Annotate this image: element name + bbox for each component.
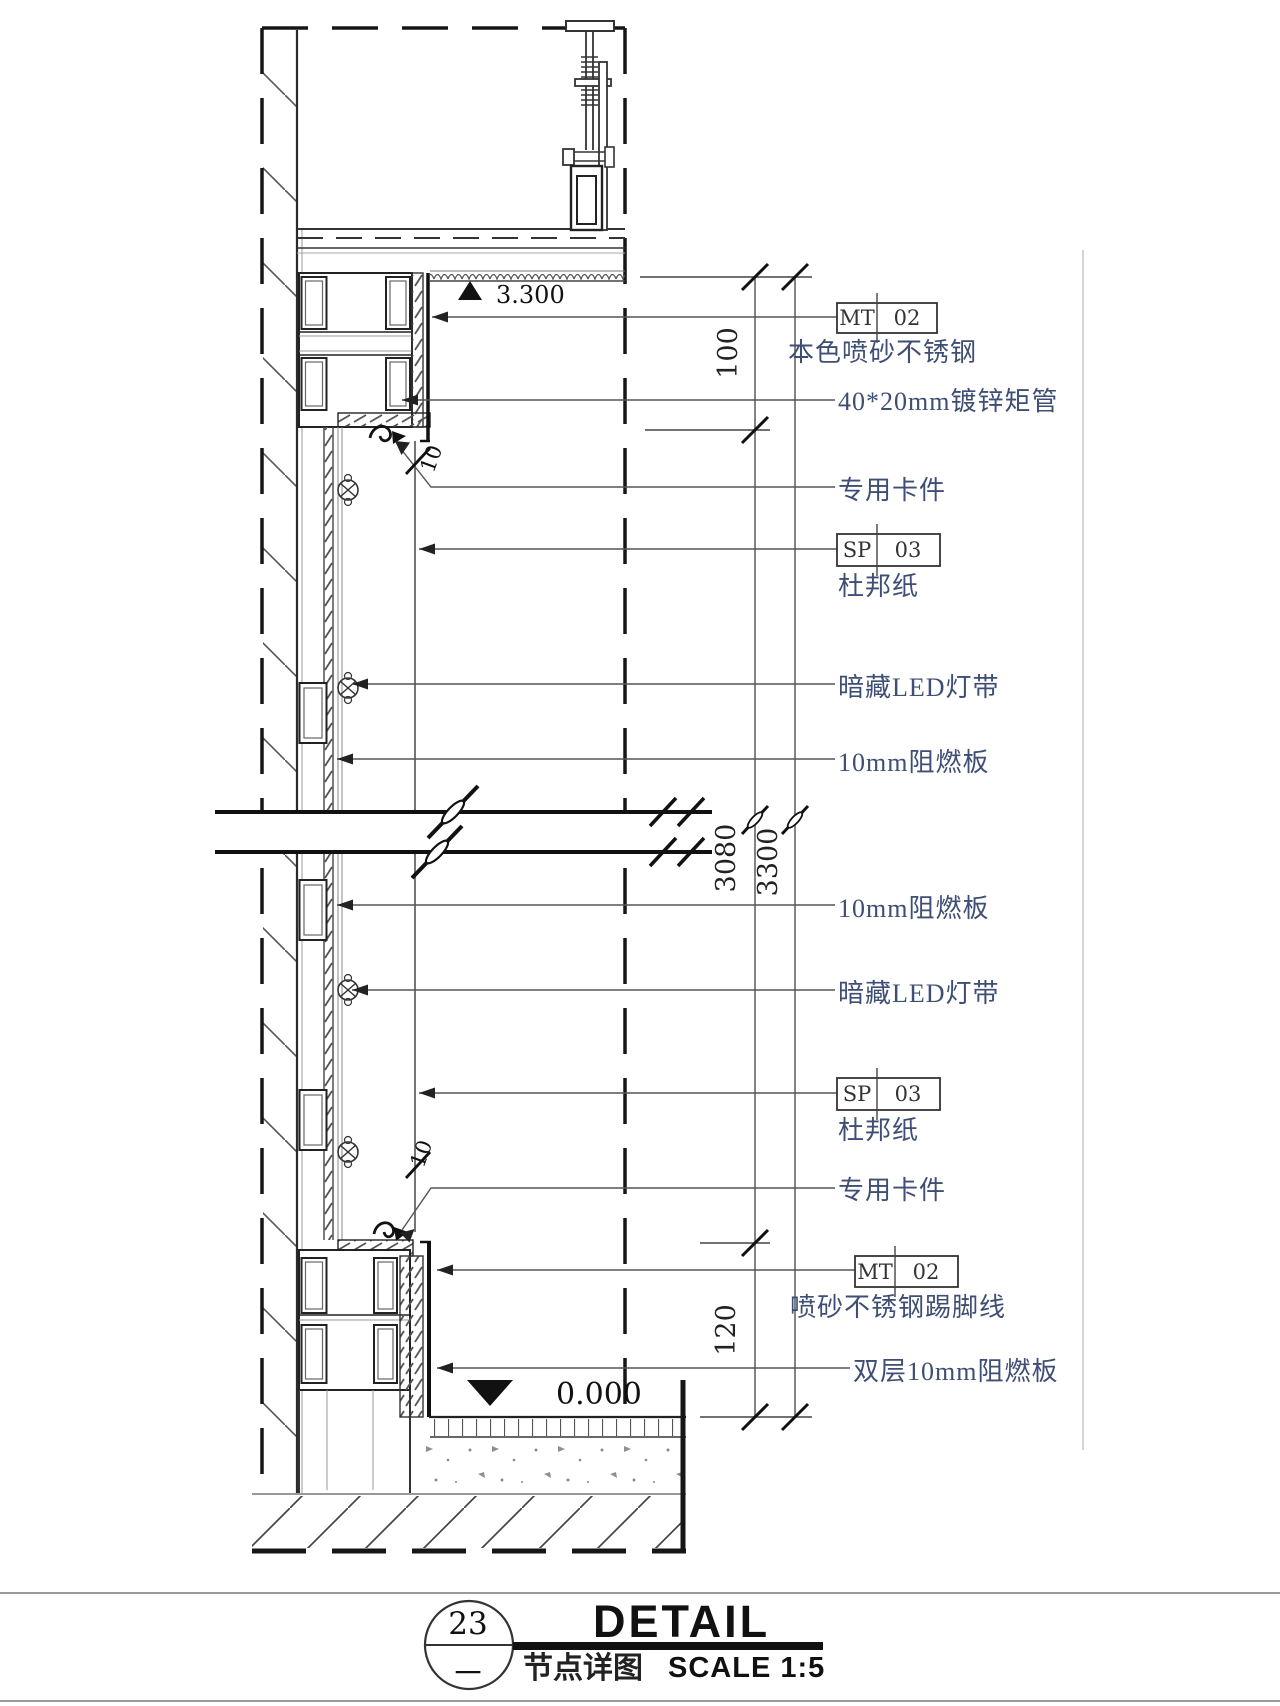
wall-tube-sections [300,683,327,1150]
dim-120: 120 [711,1304,742,1356]
label-led-strip-bottom: 暗藏LED灯带 [838,979,1000,1008]
drawing-scale: SCALE 1:5 [668,1652,825,1684]
clip-symbol-bottom [374,1223,394,1237]
floor-tile-band [430,1419,686,1436]
hanger-anchor-plate [566,21,614,31]
leader-clip-top [397,444,835,487]
leader-clip-bottom [402,1188,835,1230]
label-clip-top: 专用卡件 [838,476,946,505]
label-board-top: 10mm阻燃板 [838,748,989,777]
sheet-ref: 一 [455,1659,482,1690]
top-block-outline [299,273,412,427]
label-led-strip-top: 暗藏LED灯带 [838,673,1000,702]
tag-sp-bottom-num: 03 [895,1082,922,1106]
bottom-skirting-block [299,1223,431,1493]
hanger-bolt-clamp [605,147,614,167]
ceiling-finish-scallop [430,271,625,281]
label-board-bottom: 10mm阻燃板 [838,894,989,923]
drawing-subtitle: 节点详图 [523,1652,643,1685]
dim-3080: 3080 [711,824,742,893]
label-skirting: 喷砂不锈钢踢脚线 [790,1293,1006,1322]
tag-sp-bottom: SP 03 [837,1068,940,1120]
label-stainless-steel: 本色喷砂不锈钢 [788,338,977,367]
top-cove-board [338,413,430,427]
screw-icon [338,1137,358,1168]
top-frame-block [299,273,430,444]
dim-100: 100 [713,327,744,379]
gap-dimensions: 10 10 [406,442,448,1178]
bottom-block-inner-extensions [327,1390,373,1490]
drawing-title: DETAIL [593,1596,770,1647]
wall-hatch [263,30,297,1492]
hanger-thread-upper [581,57,598,77]
label-clip-bottom: 专用卡件 [838,1176,946,1205]
tag-sp-top-code: SP [843,538,872,562]
floor-slab-hatch [252,1496,684,1548]
existing-wall [262,28,302,1496]
level-top-value: 3.300 [496,281,565,309]
screw-icon [338,475,358,506]
clip-symbol-top [370,426,391,440]
material-tags: MT 02 SP 03 SP 03 MT 02 [837,293,958,1297]
section-detail-svg: 100 3080 3300 120 3.300 0.000 10 [0,0,1280,1706]
level-triangle-top-icon [458,281,482,300]
hanger-thread-lower [581,90,598,105]
tag-mt-bottom-code: MT [857,1260,893,1284]
tag-mt-top: MT 02 [837,293,937,343]
label-dupont-paper-bottom: 杜邦纸 [838,1116,919,1145]
label-dupont-paper-top: 杜邦纸 [838,572,919,601]
detail-number: 23 [448,1606,487,1642]
tag-mt-top-num: 02 [894,306,921,330]
hanger-bolt-head [563,149,574,165]
bottom-block-extensions [299,1390,410,1493]
tag-mt-bottom-num: 02 [913,1260,940,1284]
annotation-labels: 本色喷砂不锈钢 40*20mm镀锌矩管 专用卡件 杜邦纸 暗藏LED灯带 10m… [788,338,1058,1386]
level-triangle-bottom-icon [467,1380,513,1406]
tag-mt-bottom: MT 02 [855,1246,958,1297]
screw-icon [338,673,358,704]
gap-dim-top: 10 [416,442,448,475]
concrete-screed [423,1440,686,1493]
title-block: 23 一 DETAIL 节点详图 SCALE 1:5 [0,1593,1280,1701]
detail-drawing-sheet: 100 3080 3300 120 3.300 0.000 10 [0,0,1280,1706]
label-galvanized-tube: 40*20mm镀锌矩管 [838,387,1058,416]
tag-sp-bottom-code: SP [843,1082,872,1106]
tag-mt-top-code: MT [839,306,875,330]
double-board-skirting [400,1256,423,1417]
label-double-board: 双层10mm阻燃板 [853,1357,1058,1386]
break-mask [216,814,712,851]
tag-sp-top: SP 03 [837,524,940,576]
ceiling-hanger [563,21,614,230]
dim-3300: 3300 [753,828,784,897]
gap-dim-bottom: 10 [406,1137,438,1170]
tag-sp-top-num: 03 [895,538,922,562]
level-bottom-value: 0.000 [556,1377,642,1412]
